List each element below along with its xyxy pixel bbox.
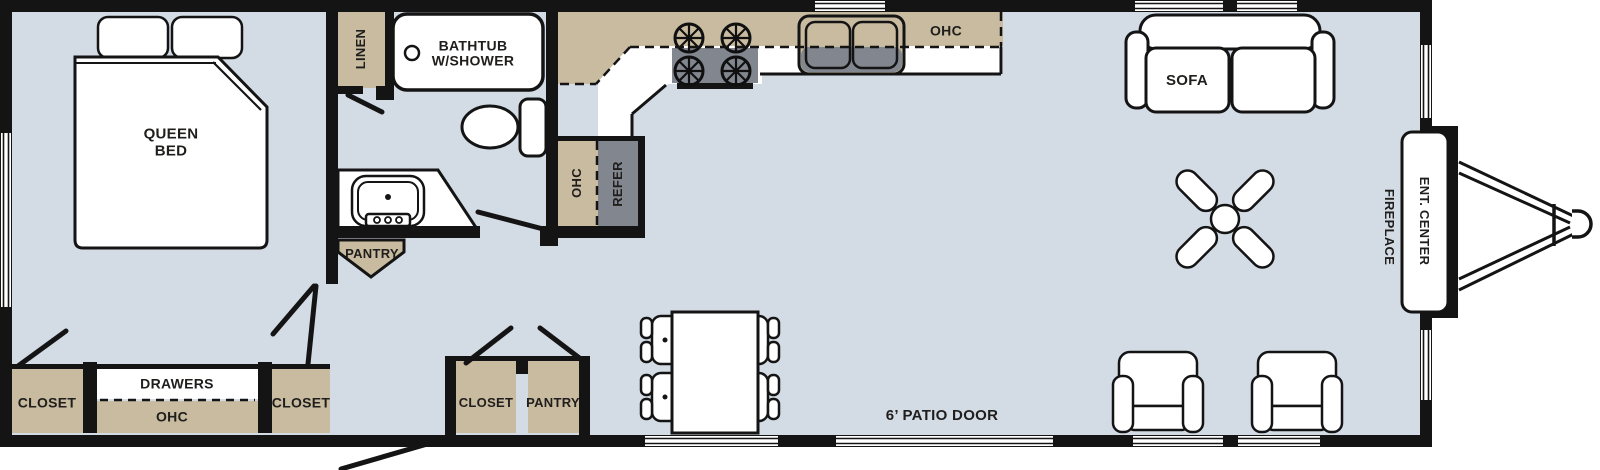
window-left-bedroom [1, 133, 11, 307]
bathtub-drain [405, 46, 419, 60]
rv-floor-plan: QUEEN BED LINEN BATHTUB W/SHOWER PANTRY … [0, 0, 1600, 470]
hitch-frame [1459, 162, 1584, 290]
patio-door-glass-1 [645, 436, 778, 446]
window-top-sofa-1 [1135, 1, 1223, 11]
pillow [98, 17, 168, 58]
wall-linen-right [385, 10, 394, 95]
window-bottom-2 [1238, 436, 1320, 446]
drawers-label: DRAWERS [140, 376, 214, 391]
wall-entry-stub-mid [516, 356, 528, 374]
wall-bath-kitchen [546, 10, 558, 240]
kitchen-ohc-side-label: OHC [570, 168, 584, 198]
window-top-sofa-2 [1237, 1, 1297, 11]
refer-label: REFER [611, 161, 625, 207]
armchair [1252, 352, 1342, 432]
dining-table [672, 312, 758, 433]
bedroom-ohc-label: OHC [156, 409, 188, 424]
entry-pantry-label: PANTRY [526, 396, 580, 410]
kitchen-ohc-top-label: OHC [930, 23, 962, 38]
floor-plan-drawing [0, 0, 1600, 470]
closet-left-label: CLOSET [18, 395, 77, 410]
wall-closet-stub-a [83, 362, 97, 433]
hitch-coupler [1572, 211, 1591, 237]
patio-door-label: 6’ PATIO DOOR [886, 408, 999, 425]
window-top-kitchen [815, 1, 885, 11]
window-bottom-1 [1133, 436, 1223, 446]
wall-closet-stub-b [258, 362, 272, 433]
closet-right-label: CLOSET [272, 395, 331, 410]
wall-entry-stub-right [579, 356, 590, 435]
entry-closet-label: CLOSET [459, 396, 514, 410]
queen-bed-label: QUEEN BED [144, 127, 199, 160]
bath-pantry-label: PANTRY [345, 247, 399, 261]
window-right-lower [1421, 330, 1431, 400]
wall-refer-bottom [551, 226, 645, 238]
sofa-cushion [1232, 48, 1315, 112]
wall-entry-stub-left [445, 356, 456, 435]
sofa-label: SOFA [1166, 73, 1208, 90]
kitchen-sink [799, 16, 904, 74]
linen-label: LINEN [354, 29, 368, 70]
wall-bath-bottom [338, 226, 480, 238]
ent-center-label: ENT. CENTER [1417, 177, 1431, 266]
bathtub-label: BATHTUB W/SHOWER [432, 39, 515, 70]
wall-bedroom-divider [326, 10, 338, 284]
pillow [172, 17, 242, 58]
patio-door-glass-2 [836, 436, 1053, 446]
sofa [1126, 15, 1334, 112]
armchair [1113, 352, 1203, 432]
window-right-upper [1421, 45, 1431, 118]
fireplace-label: FIREPLACE [1382, 189, 1396, 265]
